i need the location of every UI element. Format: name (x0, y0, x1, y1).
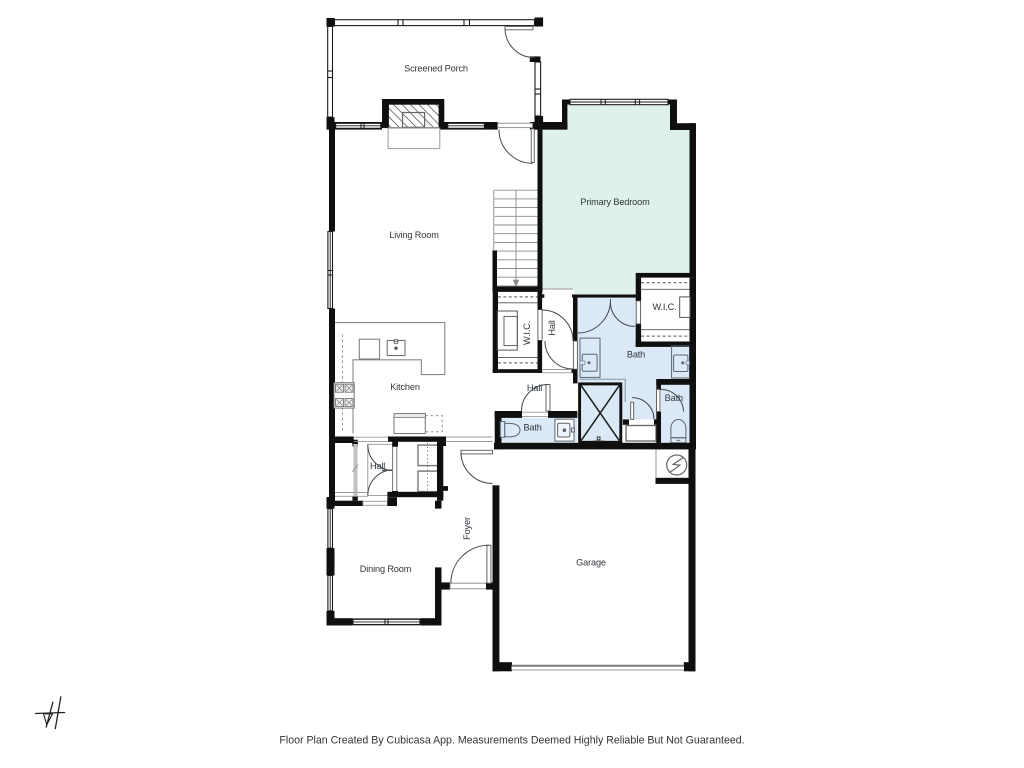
svg-text:Hall: Hall (547, 320, 557, 335)
svg-text:Screened Porch: Screened Porch (404, 64, 468, 74)
svg-text:W.I.C.: W.I.C. (522, 321, 532, 345)
svg-text:Floor Plan Created By Cubicasa: Floor Plan Created By Cubicasa App. Meas… (279, 735, 744, 747)
svg-text:Dining Room: Dining Room (360, 564, 412, 574)
svg-text:Foyer: Foyer (462, 517, 472, 540)
svg-text:Bath: Bath (665, 393, 683, 403)
svg-text:Hall: Hall (370, 461, 385, 471)
svg-text:Garage: Garage (576, 558, 606, 568)
svg-text:W.I.C.: W.I.C. (652, 302, 676, 312)
svg-text:Bath: Bath (627, 349, 645, 359)
svg-text:Bath: Bath (523, 423, 541, 433)
svg-text:Living Room: Living Room (389, 230, 439, 240)
svg-text:Hall: Hall (527, 383, 542, 393)
svg-text:Kitchen: Kitchen (390, 382, 420, 392)
svg-text:Primary Bedroom: Primary Bedroom (580, 197, 650, 207)
